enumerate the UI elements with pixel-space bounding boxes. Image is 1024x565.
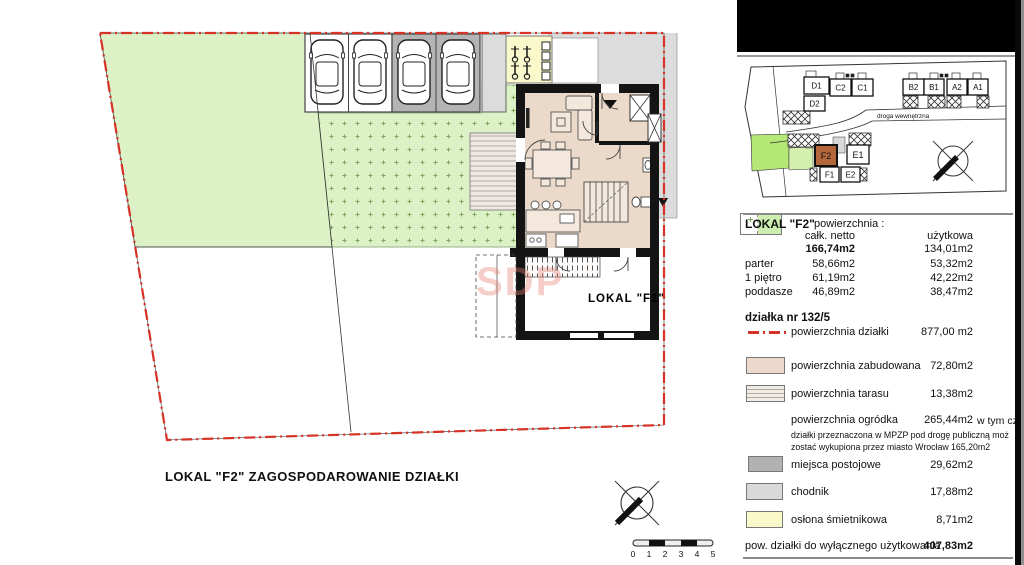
site-plan-document: LOKAL "F1" SDP [0, 0, 1024, 565]
scale-tick: 2 [663, 549, 668, 559]
legend-value: 29,62m2 [900, 459, 973, 471]
minimap-unit-d2: D2 [809, 100, 820, 109]
floor-name: poddasze [745, 286, 793, 298]
legend-label: osłona śmietnikowa [791, 514, 887, 526]
legend-note: zostać wykupiona przez miasto Wrocław [791, 442, 949, 452]
floor-netto: 61,19m2 [795, 272, 855, 284]
divider [737, 55, 1015, 57]
legend-value: 72,80m2 [900, 360, 973, 372]
minimap-unit-f2: F2 [821, 151, 832, 161]
minimap-road-label: droga wewnętrzna [877, 113, 930, 120]
total-netto: 166,74m2 [795, 243, 855, 255]
col-header-uzytkowa: użytkowa [900, 230, 973, 242]
watermark: SDP [476, 260, 564, 304]
sidewalk-swatch [746, 483, 783, 500]
parking-area [305, 34, 506, 112]
legend-note-value: 165,20m2 [951, 442, 990, 452]
scale-tick: 1 [647, 549, 652, 559]
scale-bar: 0 1 2 3 4 5 [631, 540, 716, 559]
minimap-unit-f1: F1 [825, 171, 835, 180]
minimap-unit-c2: C2 [835, 84, 846, 93]
floor-uzytkowa: 53,32m2 [900, 258, 973, 270]
legend-lokal-title: LOKAL "F2" [745, 217, 815, 231]
floor-netto: 46,89m2 [795, 286, 855, 298]
legend-label: chodnik [791, 486, 829, 498]
legend-value: 17,88m2 [900, 486, 973, 498]
car-icon [353, 40, 388, 104]
legend-label: miejsca postojowe [791, 459, 881, 471]
minimap-unit-c1: C1 [857, 84, 868, 93]
minimap-unit-d1: D1 [811, 82, 822, 91]
north-arrow-icon [615, 481, 659, 525]
legend-panel: LOKAL "F2" powierzchnia : całk. netto uż… [740, 213, 1015, 560]
legend-value: 13,38m2 [900, 388, 973, 400]
window-east [648, 114, 661, 142]
minimap-unit-a2: A2 [952, 83, 962, 92]
legend-label: powierzchnia działki [791, 326, 889, 338]
minimap-unit-b2: B2 [909, 83, 919, 92]
trash-enclosure [506, 36, 552, 83]
legend-label: powierzchnia ogródka [791, 414, 898, 426]
total-uzytkowa: 134,01m2 [900, 243, 973, 255]
legend-lokal-subtitle: powierzchnia : [814, 218, 884, 230]
floor-name: parter [745, 258, 774, 270]
minimap-unit-a1: A1 [973, 83, 983, 92]
trash-swatch [746, 511, 783, 528]
scale-tick: 0 [631, 549, 636, 559]
lawn-area [100, 33, 332, 247]
dzialka-title: działka nr 132/5 [745, 312, 830, 324]
legend-note: działki przeznaczona w MPZP pod drogę pu… [791, 430, 1009, 440]
col-header-netto: całk. netto [795, 230, 855, 242]
divider [743, 557, 1013, 559]
legend-value: 877,00 m2 [900, 326, 973, 338]
boundary-swatch [748, 331, 786, 334]
minimap-unit-e1: E1 [852, 150, 863, 160]
car-icon [441, 40, 476, 104]
minimap-unit-e2: E2 [846, 171, 856, 180]
legend-value: 265,44m2 [900, 414, 973, 426]
terrace-swatch [746, 385, 785, 402]
car-icon [310, 40, 345, 104]
terrace-area [470, 133, 518, 210]
building-f2 [510, 84, 661, 257]
floor-name: 1 piętro [745, 272, 782, 284]
legend-value: 8,71m2 [900, 514, 973, 526]
parking-swatch [748, 456, 783, 472]
floor-uzytkowa: 42,22m2 [900, 272, 973, 284]
minimap-unit-b1: B1 [929, 83, 939, 92]
car-icon [397, 40, 432, 104]
scale-tick: 3 [679, 549, 684, 559]
plan-title: LOKAL "F2" ZAGOSPODAROWANIE DZIAŁKI [165, 469, 459, 484]
built-area-swatch [746, 357, 785, 374]
scale-tick: 4 [695, 549, 700, 559]
stairs-f2 [584, 182, 628, 222]
location-minimap: D1 D2 C2 C1 B2 B1 A2 A1 F2 E1 F1 E2 drog… [737, 58, 1017, 210]
scale-tick: 5 [711, 549, 716, 559]
lokal-f1-label: LOKAL "F1" [588, 293, 665, 305]
legend-note-inline: w tym cz [977, 415, 1015, 427]
floor-uzytkowa: 38,47m2 [900, 286, 973, 298]
floor-netto: 58,66m2 [795, 258, 855, 270]
wardrobe [630, 95, 650, 121]
legend-footer-value: 407,83m2 [900, 540, 973, 552]
legend-label: powierzchnia tarasu [791, 388, 889, 400]
divider [743, 213, 1013, 215]
logo-redacted-box [737, 0, 1015, 52]
